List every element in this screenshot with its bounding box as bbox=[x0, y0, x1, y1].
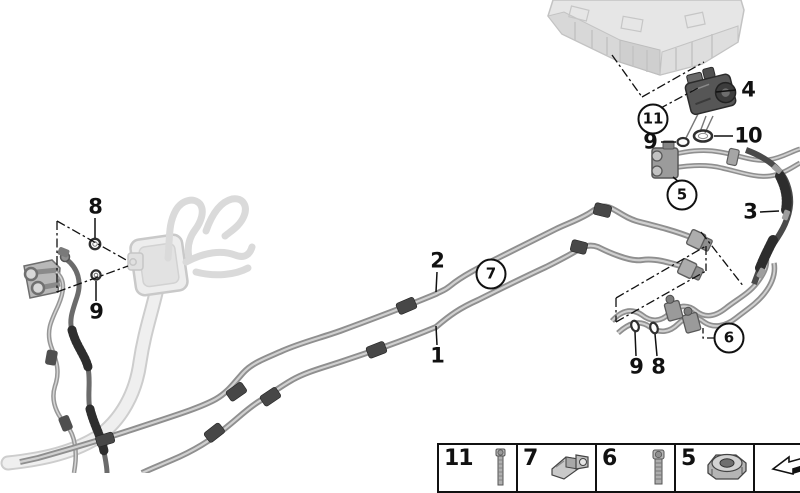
callout-3[interactable]: 3 bbox=[743, 202, 757, 223]
front-unit-ghost bbox=[8, 199, 252, 463]
legend-label: 7 bbox=[523, 448, 537, 470]
callout-8-left[interactable]: 8 bbox=[88, 197, 102, 218]
bolt-icon bbox=[645, 447, 671, 491]
callout-9-left[interactable]: 9 bbox=[89, 302, 103, 323]
legend-label: 11 bbox=[444, 448, 473, 470]
callout-11-circled[interactable]: 11 bbox=[638, 104, 669, 135]
callout-7-circled[interactable]: 7 bbox=[476, 259, 507, 290]
o-ring-10 bbox=[694, 131, 712, 142]
callout-2[interactable]: 2 bbox=[430, 251, 444, 272]
legend-item-7[interactable]: 7 bbox=[516, 443, 597, 493]
legend-item-direction[interactable] bbox=[753, 443, 800, 493]
callout-9-bottom[interactable]: 9 bbox=[629, 357, 643, 378]
legend-item-6[interactable]: 6 bbox=[595, 443, 676, 493]
legend-item-11[interactable]: 11 bbox=[437, 443, 518, 493]
callout-10[interactable]: 10 bbox=[734, 126, 761, 147]
callout-9-top[interactable]: 9 bbox=[643, 132, 657, 153]
pipe-clamp-icon bbox=[548, 447, 592, 487]
left-bracket bbox=[24, 260, 60, 298]
diagram-canvas bbox=[0, 0, 800, 473]
callout-4[interactable]: 4 bbox=[741, 80, 755, 101]
valve-4 bbox=[682, 63, 739, 138]
bolt-long-icon bbox=[487, 447, 513, 491]
legend-label: 6 bbox=[602, 448, 616, 470]
flange-nut-icon bbox=[702, 447, 750, 489]
direction-arrow-icon bbox=[769, 447, 800, 489]
legend-item-5[interactable]: 5 bbox=[674, 443, 755, 493]
pipe-1 bbox=[142, 246, 684, 473]
callout-1[interactable]: 1 bbox=[430, 346, 444, 367]
legend-label: 5 bbox=[681, 448, 695, 470]
parts-diagram-page: { "diagram": { "title": "Refrigerant lin… bbox=[0, 0, 800, 473]
battery-unit-ghost bbox=[548, 0, 744, 75]
callout-5-circled[interactable]: 5 bbox=[667, 180, 698, 211]
callout-6-circled[interactable]: 6 bbox=[714, 323, 745, 354]
legend: 11 7 6 bbox=[437, 443, 800, 493]
callout-8-bottom[interactable]: 8 bbox=[651, 357, 665, 378]
washer-8-bottom bbox=[649, 322, 659, 334]
seal-9-top bbox=[678, 138, 689, 146]
